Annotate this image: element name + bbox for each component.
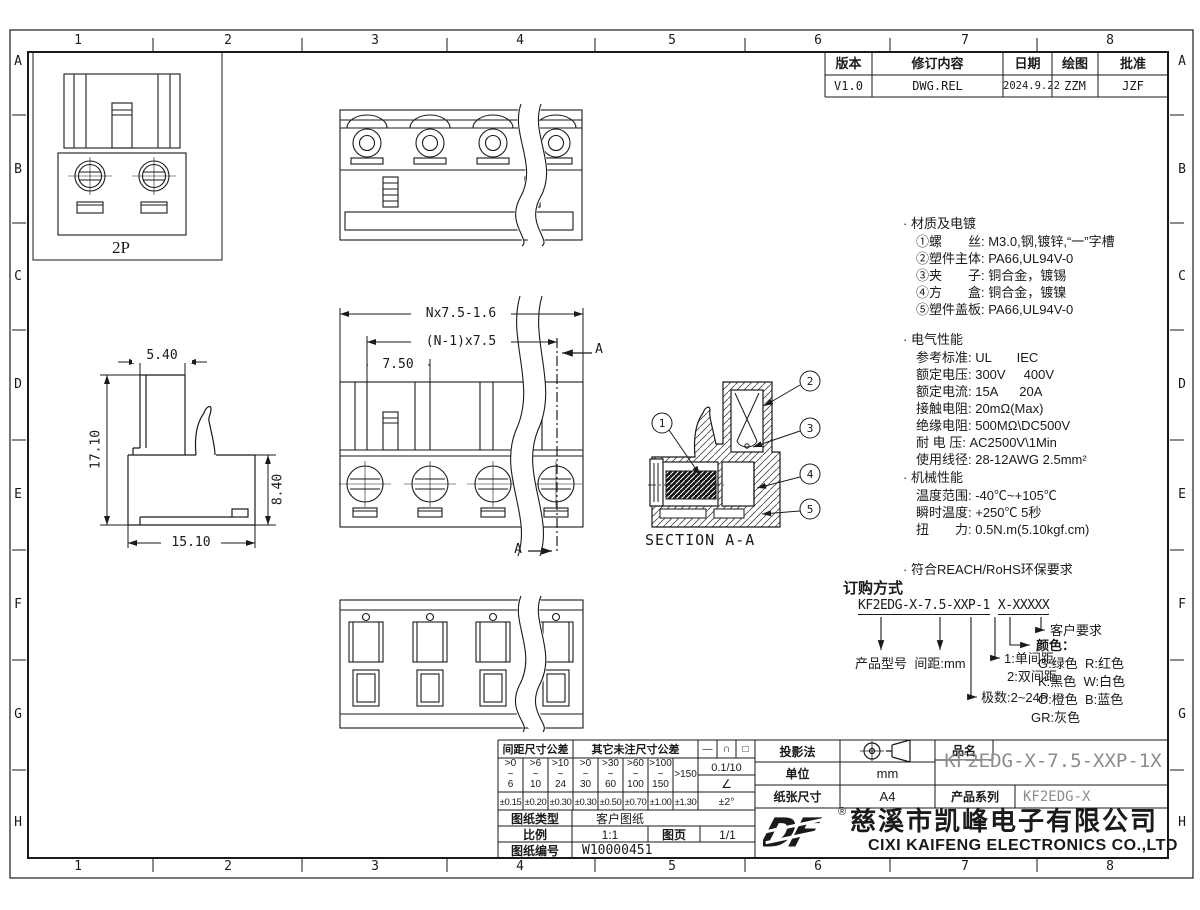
tolerance-value: ±1.00 [648, 796, 673, 810]
dim-pitch: 7.50 [368, 357, 428, 372]
revision-col-date: 日期 [1003, 56, 1052, 72]
revision-approve: JZF [1098, 79, 1168, 94]
tolerance-range: >10 ~ 24 [548, 759, 573, 791]
zone-number-bottom: 5 [662, 859, 682, 874]
company-name-en: CIXI KAIFENG ELECTRONICS CO.,LTD [868, 836, 1178, 856]
compliance-note: · 符合REACH/RoHS环保要求 [903, 562, 1073, 578]
field-paper-label: 纸张尺寸 [755, 790, 840, 804]
ordering-poles: 极数:2~24P [981, 690, 1049, 706]
field-sheet-label: 图页 [648, 828, 700, 842]
tolerance-value: ±0.50 [598, 796, 623, 810]
arc-icon: ∩ [717, 742, 736, 756]
dim-height: 17.10 [89, 420, 104, 480]
zone-letter-right: H [1172, 815, 1192, 830]
tolerance-value: ±0.30 [573, 796, 598, 810]
field-drawing-no-value: W10000451 [582, 843, 652, 859]
zone-number-bottom: 4 [510, 859, 530, 874]
zone-number-top: 3 [365, 33, 385, 48]
tolerance-value: ±0.20 [523, 796, 548, 810]
tolerance-value: ±0.70 [623, 796, 648, 810]
ordering-spacing-single: 1:单间距 [1004, 651, 1054, 667]
callout-5: 5 [802, 502, 818, 517]
straightness-icon: — [698, 743, 717, 757]
tolerance-range: >6 ~ 10 [523, 759, 548, 791]
tolerance-range: >0 ~ 6 [498, 759, 523, 791]
ordering-customer: 客户要求 [1050, 623, 1102, 639]
zone-number-top: 6 [808, 33, 828, 48]
angle-icon: ∠ [698, 777, 755, 791]
field-scale-label: 比例 [498, 828, 572, 842]
section-arrow-label-top: A [589, 342, 609, 357]
ordering-color-row: O:橙色 B:蓝色 [1038, 692, 1123, 708]
material-title: · 材质及电镀 [903, 216, 976, 232]
square-icon: □ [736, 743, 755, 757]
drawing-sheet: 1 2 3 4 5 6 7 8 1 2 3 4 5 6 7 8 A B C D … [0, 0, 1200, 910]
dim-pitch-span: (N-1)x7.5 [411, 334, 511, 349]
zone-letter-left: A [8, 54, 28, 69]
zone-letter-right: C [1172, 269, 1192, 284]
zone-letter-left: G [8, 707, 28, 722]
electrical-title: · 电气性能 [903, 332, 963, 348]
field-drawing-type-value: 客户图纸 [572, 812, 668, 826]
mechanical-item: 扭 力: 0.5N.m(5.10kgf.cm) [916, 522, 1089, 538]
zone-number-bottom: 7 [955, 859, 975, 874]
zone-number-bottom: 1 [68, 859, 88, 874]
revision-date: 2024.9.22 [1003, 80, 1052, 93]
tolerance-range: >60 ~ 100 [623, 759, 648, 791]
field-part-name-value: KF2EDG-X-7.5-XXP-1X [942, 750, 1164, 774]
mechanical-item: 瞬时温度: +250℃ 5秒 [916, 505, 1041, 521]
zone-letter-right: E [1172, 487, 1192, 502]
callout-2: 2 [802, 374, 818, 389]
revision-draw: ZZM [1052, 79, 1098, 94]
company-logo: DF [763, 810, 833, 852]
mechanical-item: 温度范围: -40℃~+105℃ [916, 488, 1057, 504]
revision-col-content: 修订内容 [872, 56, 1003, 72]
part-number-base: KF2EDG-X-7.5-XXP-1 [858, 598, 990, 615]
callout-3: 3 [802, 421, 818, 436]
field-sheet-value: 1/1 [700, 828, 755, 842]
dim-lower-height: 8.40 [271, 460, 286, 520]
projection-symbol-icon [860, 740, 910, 762]
zone-number-bottom: 6 [808, 859, 828, 874]
section-arrow-label-bottom: A [508, 542, 528, 557]
section-title: SECTION A-A [645, 531, 755, 550]
ordering-color-row: GR:灰色 [1031, 710, 1080, 726]
tolerance-range: >30 ~ 60 [598, 759, 623, 791]
tolerance-range: >150 [673, 770, 698, 781]
electrical-item: 耐 电 压: AC2500V\1Min [916, 435, 1057, 451]
material-item: ③夹 子: 铜合金，镀锡 [916, 268, 1066, 284]
view-section [648, 382, 780, 527]
field-drawing-no-label: 图纸编号 [498, 844, 572, 858]
zone-number-top: 4 [510, 33, 530, 48]
field-unit-label: 单位 [755, 767, 840, 781]
electrical-item: 接触电阻: 20mΩ(Max) [916, 401, 1043, 417]
tolerance-value: ±1.30 [673, 796, 698, 810]
zone-number-top: 1 [68, 33, 88, 48]
dim-bottom-width: 15.10 [161, 535, 221, 550]
angle-tolerance-value: ±2° [698, 795, 755, 809]
callout-4: 4 [802, 467, 818, 482]
zone-letter-left: E [8, 487, 28, 502]
zone-letter-left: B [8, 162, 28, 177]
revision-col-draw: 绘图 [1052, 56, 1098, 72]
zone-number-bottom: 2 [218, 859, 238, 874]
field-unit-value: mm [840, 767, 935, 781]
field-scale-value: 1:1 [572, 828, 648, 842]
zone-number-top: 8 [1100, 33, 1120, 48]
revision-col-approve: 批准 [1098, 56, 1168, 72]
plan-break-lines [516, 104, 547, 246]
ordering-part-number: KF2EDG-X-7.5-XXP-1X-XXXXX [858, 598, 1049, 614]
field-projection-label: 投影法 [755, 745, 840, 759]
dim-top-width: 5.40 [132, 348, 192, 363]
field-series-value: KF2EDG-X [1023, 789, 1090, 807]
ordering-title: 订购方式 [843, 580, 903, 599]
tolerance-range: >0 ~ 30 [573, 759, 598, 791]
zone-number-top: 2 [218, 33, 238, 48]
mechanical-title: · 机械性能 [903, 470, 963, 486]
electrical-item: 绝缘电阻: 500MΩ\DC500V [916, 418, 1070, 434]
zone-letter-right: D [1172, 377, 1192, 392]
ordering-model: 产品型号 [853, 656, 909, 672]
material-item: ②塑件主体: PA66,UL94V-0 [916, 251, 1073, 267]
material-item: ⑤塑件盖板: PA66,UL94V-0 [916, 302, 1073, 318]
zone-letter-right: B [1172, 162, 1192, 177]
zone-letter-right: F [1172, 597, 1192, 612]
tolerance-value: ±0.15 [498, 796, 523, 810]
electrical-item: 额定电流: 15A 20A [916, 384, 1042, 400]
tolerance-range: >100 ~ 150 [648, 759, 673, 791]
front-break-lines [511, 296, 546, 556]
view-2p-label: 2P [96, 238, 146, 258]
field-paper-value: A4 [840, 790, 935, 804]
zone-letter-left: D [8, 377, 28, 392]
electrical-item: 参考标准: UL IEC [916, 350, 1038, 366]
view-side [128, 375, 255, 525]
tolerance-value: ±0.30 [548, 796, 573, 810]
zone-letter-right: G [1172, 707, 1192, 722]
dim-total-width: Nx7.5-1.6 [411, 306, 511, 321]
zone-letter-left: C [8, 269, 28, 284]
flatness-value: 0.1/10 [698, 761, 755, 775]
zone-number-bottom: 8 [1100, 859, 1120, 874]
material-item: ①螺 丝: M3.0,钢,镀锌,“一”字槽 [916, 234, 1115, 250]
zone-letter-left: F [8, 597, 28, 612]
zone-letter-right: A [1172, 54, 1192, 69]
zone-number-top: 5 [662, 33, 682, 48]
electrical-item: 使用线径: 28-12AWG 2.5mm² [916, 452, 1087, 468]
part-number-suffix: X-XXXXX [998, 598, 1049, 615]
view-front [339, 382, 583, 527]
field-series-label: 产品系列 [935, 790, 1015, 804]
field-drawing-type-label: 图纸类型 [498, 812, 572, 826]
revision-col-version: 版本 [825, 56, 872, 72]
zone-letter-left: H [8, 815, 28, 830]
zone-number-bottom: 3 [365, 859, 385, 874]
side-dimensions [100, 356, 276, 548]
ordering-pitch: 间距:mm [912, 656, 968, 672]
zone-number-top: 7 [955, 33, 975, 48]
revision-content: DWG.REL [872, 79, 1003, 94]
electrical-item: 额定电压: 300V 400V [916, 367, 1054, 383]
view-2p [33, 52, 222, 260]
bottom-break-lines [515, 596, 545, 732]
revision-version: V1.0 [825, 79, 872, 94]
ordering-spacing-double: 2:双间距 [1007, 669, 1057, 685]
registered-mark-icon: ® [838, 806, 846, 820]
company-name-cn: 慈溪市凯峰电子有限公司 [850, 807, 1158, 835]
tolerance-pitch-header: 间距尺寸公差 [498, 743, 573, 757]
tolerance-other-header: 其它未注尺寸公差 [573, 743, 698, 757]
material-item: ④方 盒: 铜合金，镀镍 [916, 285, 1066, 301]
callout-1: 1 [654, 416, 670, 431]
